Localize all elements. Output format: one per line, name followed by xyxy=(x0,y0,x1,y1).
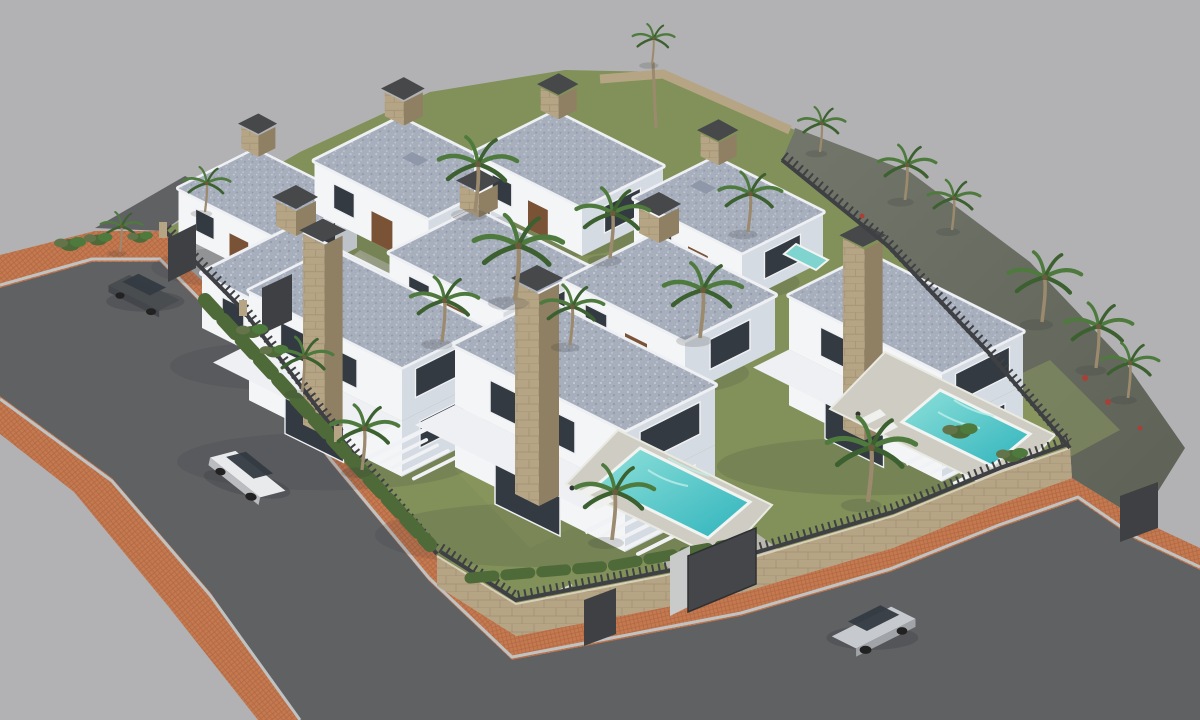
patio-table xyxy=(570,486,575,491)
gate-pillar xyxy=(670,546,690,616)
render-canvas: Aerial 3D architect's rendering of a new… xyxy=(0,0,1200,720)
stone-pillar xyxy=(239,300,247,316)
villa-development-render: Aerial 3D architect's rendering of a new… xyxy=(0,0,1200,720)
stone-pillar xyxy=(159,222,167,238)
